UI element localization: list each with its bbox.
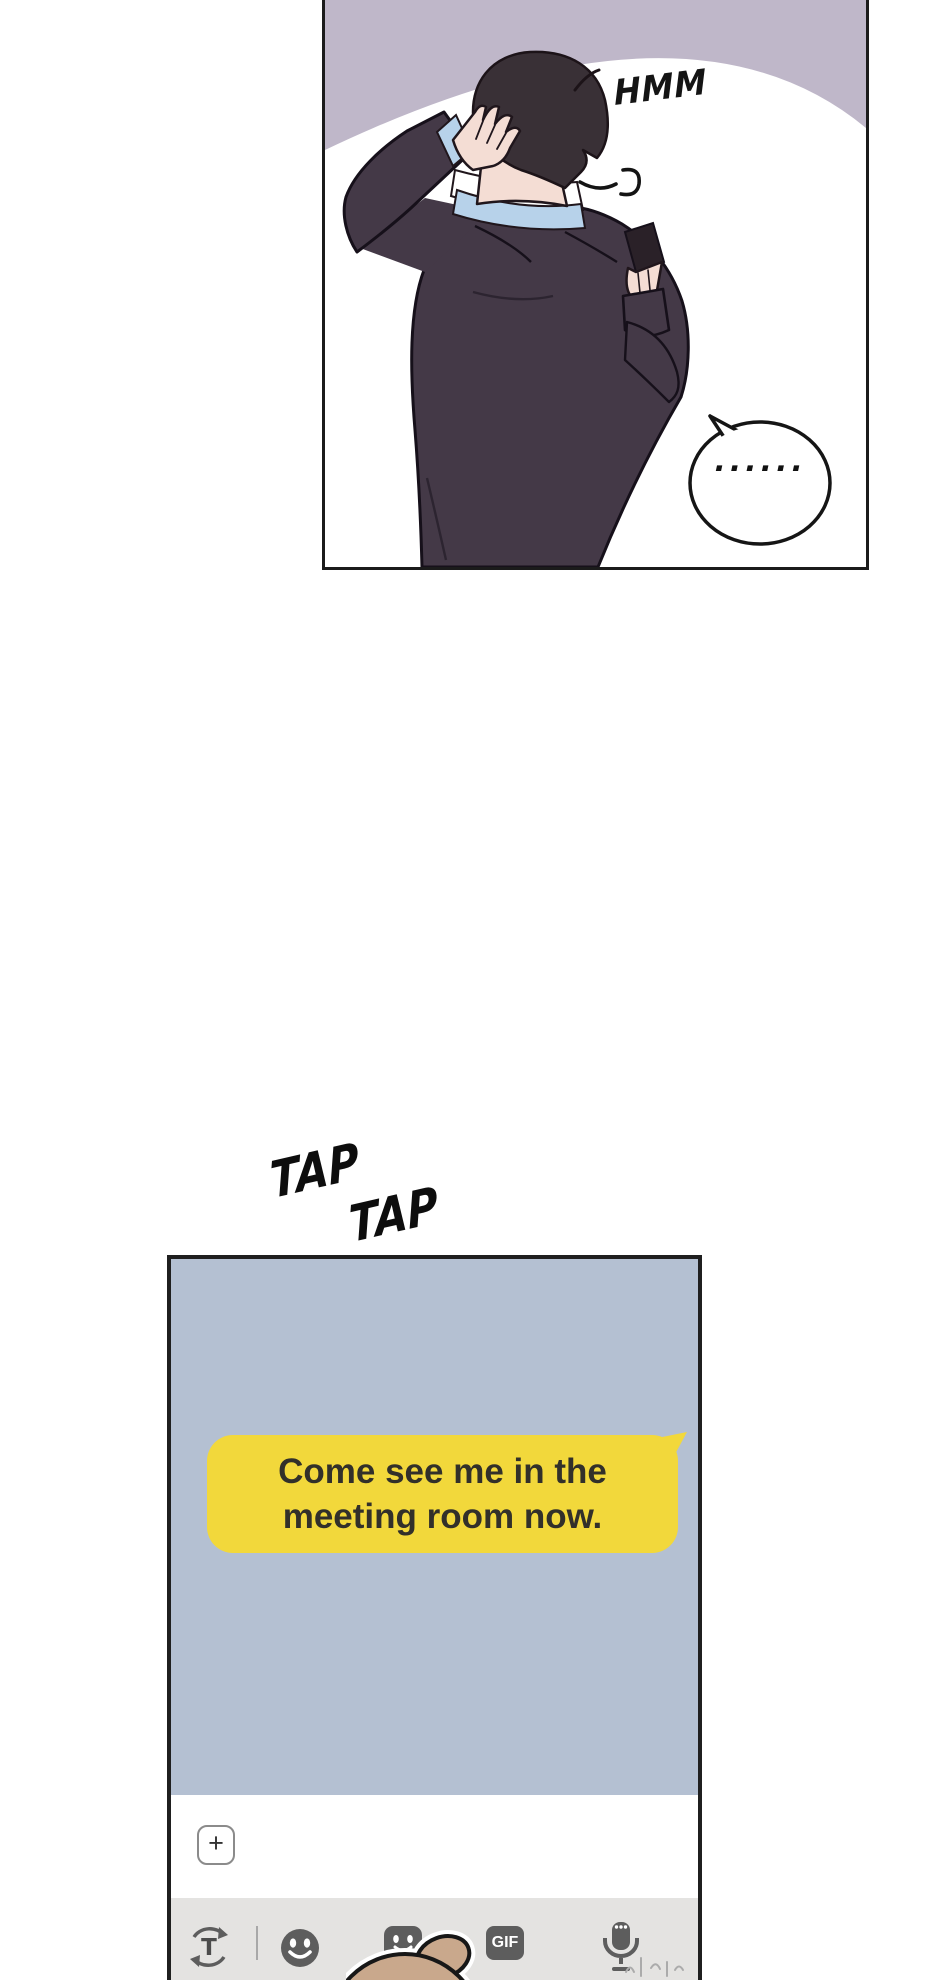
svg-text:T: T bbox=[201, 1935, 217, 1961]
sigh-curl-mark bbox=[580, 170, 639, 195]
keyboard-toolbar: T GIF bbox=[171, 1898, 698, 1980]
message-line-1: Come see me in the bbox=[278, 1449, 607, 1495]
emoji-icon[interactable] bbox=[279, 1927, 321, 1969]
faint-sketch-marks bbox=[623, 1954, 687, 1980]
sent-message-bubble: Come see me in the meeting room now. bbox=[207, 1435, 678, 1553]
comic-panel-top: HMM ...... bbox=[322, 0, 869, 570]
attach-plus-button[interactable]: + bbox=[197, 1825, 235, 1865]
text-translate-icon[interactable]: T bbox=[185, 1922, 233, 1972]
man-figure bbox=[344, 52, 688, 567]
speech-bubble-ellipsis: ...... bbox=[692, 444, 827, 488]
message-bubble-tail bbox=[651, 1432, 687, 1464]
message-line-2: meeting room now. bbox=[283, 1494, 603, 1540]
message-input-bar: + bbox=[171, 1795, 698, 1898]
bear-character bbox=[346, 1928, 496, 1980]
comic-page: HMM ...... TAP TAP Come see me in the me… bbox=[0, 0, 940, 1980]
toolbar-divider bbox=[256, 1926, 258, 1960]
phone-chat-panel: Come see me in the meeting room now. + T bbox=[167, 1255, 702, 1980]
chat-message-area: Come see me in the meeting room now. bbox=[171, 1259, 698, 1795]
